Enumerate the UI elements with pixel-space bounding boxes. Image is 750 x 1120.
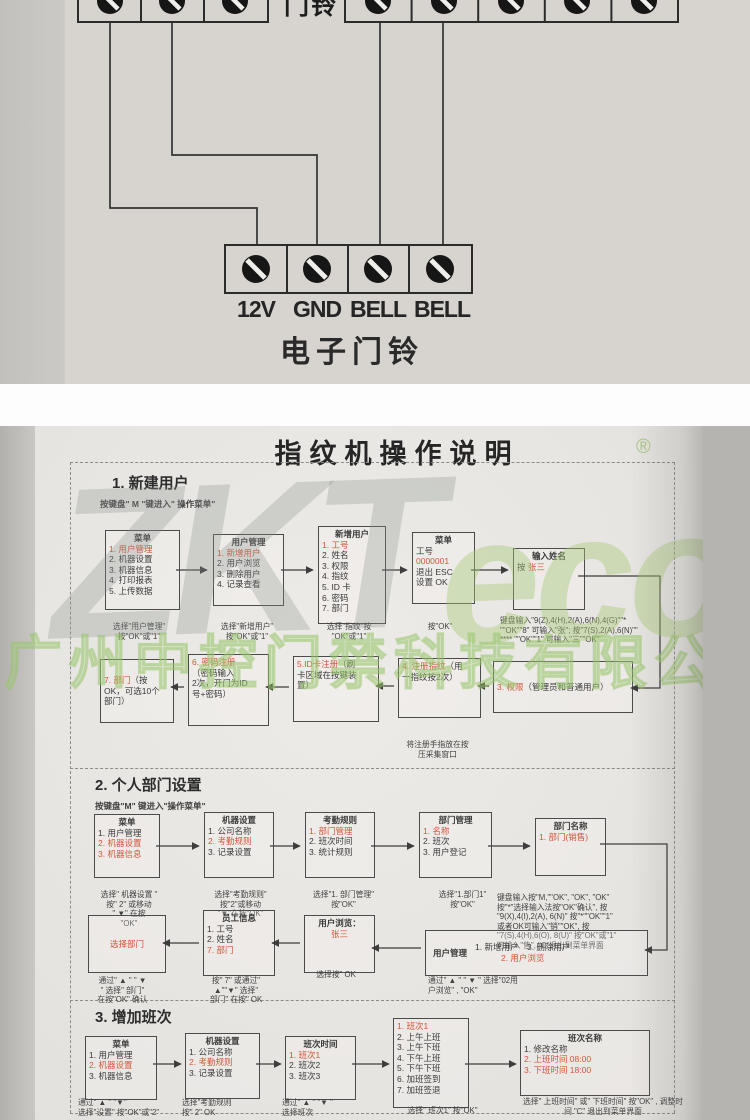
wiring-photo: 门铃 12V GND BELL BELL 电子门铃 <box>0 0 750 384</box>
photo-edge-band-right <box>703 426 750 1120</box>
white-gap <box>0 384 750 426</box>
wires <box>110 22 443 245</box>
instruction-sheet-photo: 指纹机操作说明 ® 1. 新建用户 按键盘" M "键进入" 操作菜单" 菜单1… <box>0 426 750 1120</box>
paper-fold-shadow <box>630 426 705 1120</box>
screw-terminals-top <box>97 0 657 14</box>
wiring-diagram-svg <box>0 0 750 384</box>
